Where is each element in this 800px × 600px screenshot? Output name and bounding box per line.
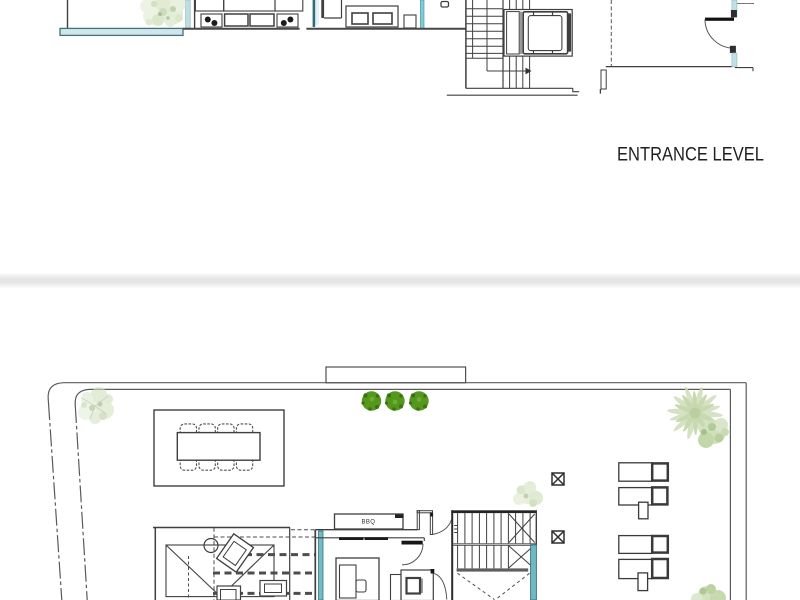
- svg-text:ENTRANCE LEVEL: ENTRANCE LEVEL: [617, 144, 764, 166]
- svg-text:BBQ: BBQ: [362, 520, 376, 526]
